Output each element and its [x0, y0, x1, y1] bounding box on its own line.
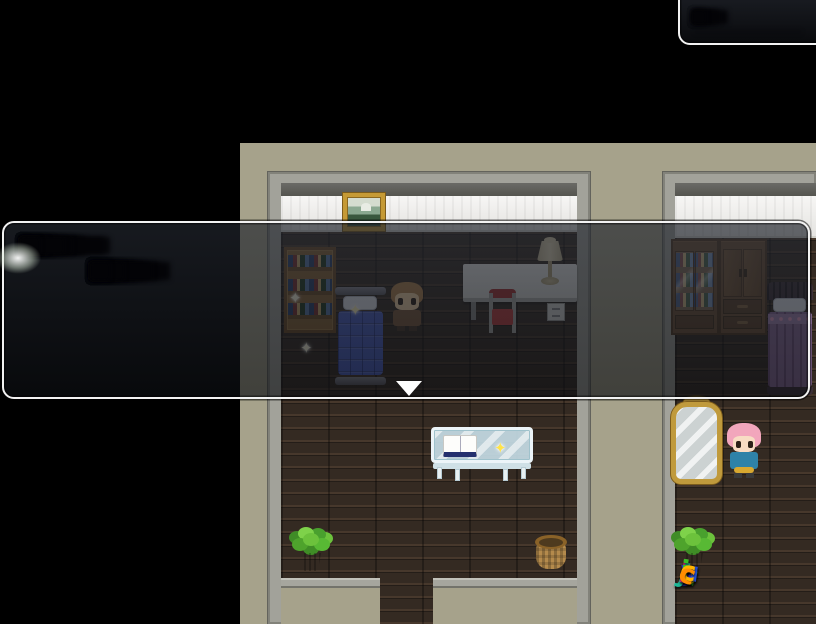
- glass-table: [431, 427, 533, 478]
- npc-character-pink: [726, 423, 762, 478]
- right-room-wall-top: [675, 183, 816, 196]
- popup-window[interactable]: [678, 0, 816, 45]
- popup-redacted-text: [680, 0, 816, 43]
- dialog-redacted-text: [4, 223, 808, 397]
- left-room-wall-top: [281, 183, 577, 196]
- dialog-window[interactable]: [2, 221, 810, 399]
- screen: ✦✦✦✦ luyouji.cc: [0, 0, 816, 624]
- basket: [535, 535, 567, 575]
- mirror: [671, 400, 722, 484]
- potted-plant: [292, 525, 330, 573]
- open-book: [443, 435, 477, 457]
